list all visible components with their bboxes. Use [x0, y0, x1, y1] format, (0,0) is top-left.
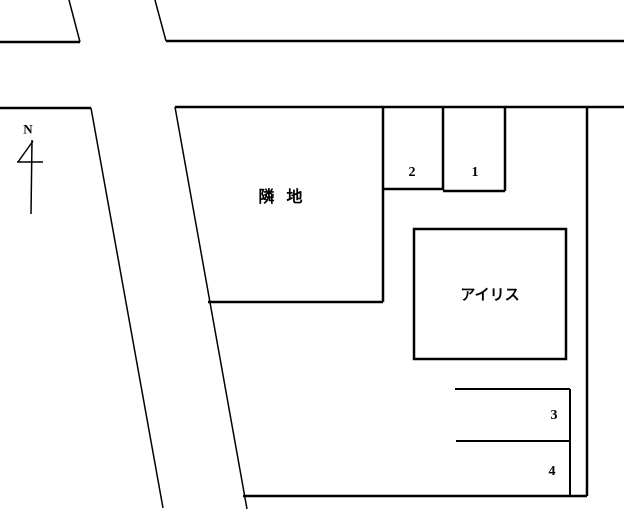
parking-space-3-label: 3 — [551, 409, 558, 423]
north-arrow-shaft-line — [31, 140, 32, 214]
road-west-upper-diagonal-line — [69, 0, 80, 42]
parking-space-2-label: 2 — [409, 166, 416, 180]
site-plan: N 隣 地 アイリス 1 2 3 4 — [0, 0, 624, 515]
building-name-label: アイリス — [460, 288, 519, 303]
parking-space-4-label: 4 — [549, 465, 556, 479]
road-west-lower-diagonal-line — [91, 108, 163, 508]
site-plan-drawing — [0, 0, 624, 515]
north-arrow-head-diagonal — [18, 141, 33, 162]
parking-space-1-label: 1 — [472, 166, 479, 180]
road-east-upper-diagonal-line — [155, 0, 166, 41]
north-compass-label: N — [23, 123, 32, 136]
adjacent-land-label: 隣 地 — [259, 190, 304, 206]
road-east-lower-diagonal-line — [175, 107, 247, 509]
